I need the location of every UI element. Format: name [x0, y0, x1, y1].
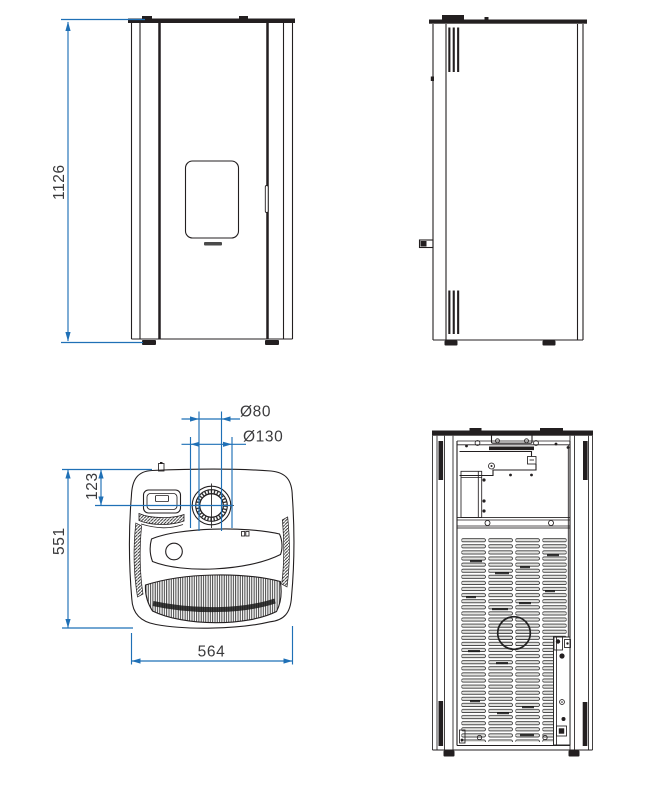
grille-shadow	[470, 700, 480, 702]
screw	[562, 717, 566, 721]
grille-shadow	[522, 706, 534, 708]
upper-mechanism	[460, 434, 570, 518]
screw-small	[482, 499, 485, 502]
grille-shadow	[492, 608, 508, 610]
arrow-left	[132, 658, 141, 663]
stepped-plate-top	[460, 452, 532, 457]
vent-slot	[448, 28, 450, 73]
screw-small	[566, 642, 568, 644]
front-foot-right	[265, 340, 279, 345]
arrow-left	[222, 416, 231, 421]
bottom-vent-slots	[448, 291, 459, 335]
hopper-lid	[139, 490, 184, 528]
grille-shadow	[519, 602, 531, 604]
vent-slot-bottom-left	[439, 701, 444, 746]
arrow-left-out	[191, 442, 200, 447]
side-foot-rear	[445, 341, 458, 346]
middle-bar	[457, 518, 570, 529]
grille-shadow	[468, 650, 480, 652]
grille-hatch	[145, 575, 281, 623]
technical-drawing-svg: 1126	[0, 0, 647, 807]
rear-connector-cap	[421, 241, 427, 247]
brand-logo-mark	[204, 242, 222, 246]
fan-housing	[498, 617, 531, 650]
door-handle	[265, 186, 268, 213]
front-grille-band	[145, 575, 281, 623]
grille-shadow	[520, 566, 530, 568]
flue-block	[442, 15, 464, 20]
front-foot-left	[142, 340, 156, 345]
panel-knob	[166, 543, 183, 560]
top-center-panel	[150, 529, 282, 569]
screw-small	[567, 446, 570, 449]
side-view	[420, 15, 588, 346]
grille-shadow	[520, 734, 534, 736]
vent-slot-top-left	[439, 441, 444, 480]
rear-view	[432, 428, 593, 757]
arrow-up	[65, 470, 70, 479]
right-vent-strip	[282, 517, 290, 587]
screw	[559, 653, 564, 658]
door-frame-edges	[160, 23, 268, 339]
screw	[485, 521, 490, 526]
top-plate-bump	[485, 17, 489, 20]
screw-small	[482, 478, 485, 481]
vent-slot	[457, 291, 459, 335]
vent-slot-top-right	[583, 441, 588, 480]
stepped-plate-bottom	[460, 464, 537, 476]
bracket-bar	[489, 447, 534, 451]
arrow-down	[65, 332, 70, 342]
flue-diameter-label: Ø80	[240, 404, 271, 421]
top-plate	[429, 20, 587, 24]
bar-lines	[457, 520, 570, 526]
screw-small	[465, 445, 468, 448]
power-socket-inner	[559, 728, 564, 733]
rear-foot-left	[444, 751, 455, 757]
stove-dimensional-drawing: 1126	[0, 0, 647, 807]
vent-slot	[448, 291, 450, 335]
screw-small	[482, 509, 485, 512]
top-view	[129, 462, 293, 628]
grille-shadow	[496, 662, 508, 664]
screw-small	[530, 474, 533, 477]
screw	[549, 521, 554, 526]
top-plate-tab	[470, 428, 482, 431]
grille-shadow	[547, 554, 559, 556]
height-label: 1126	[51, 164, 68, 200]
width-dimension: 564	[132, 626, 293, 665]
side-foot-front	[543, 341, 556, 346]
arrow-right-out	[223, 442, 232, 447]
dimension-lines	[61, 20, 145, 343]
grille-shadow	[495, 572, 509, 574]
hopper-lid-latch	[156, 496, 169, 502]
door-window	[186, 161, 239, 238]
flue-offset-label: 123	[84, 472, 101, 500]
arrow-down	[65, 619, 70, 628]
rear-tab-cap	[160, 462, 163, 464]
arrow-up	[65, 22, 70, 32]
panel-clip	[246, 532, 249, 537]
top-plate-tab	[540, 428, 563, 431]
top-plate	[128, 19, 295, 24]
front-view	[128, 16, 295, 345]
hopper-hinge-band	[139, 514, 184, 525]
arrow-right	[190, 416, 199, 421]
arrow-right	[284, 658, 293, 663]
top-plate	[432, 431, 593, 436]
intake-diameter-dimension: Ø130	[182, 429, 284, 529]
height-dimension: 1126	[51, 20, 145, 343]
grille-shadow	[470, 560, 482, 562]
panel-clip	[242, 532, 245, 537]
screw-small	[509, 474, 512, 477]
grille-shadow	[545, 590, 555, 592]
service-strip	[554, 637, 571, 745]
grille-shadow	[497, 712, 509, 714]
screw-small	[555, 443, 558, 446]
screw-center	[561, 701, 563, 703]
vent-slot	[453, 291, 455, 335]
top-plate-bump	[239, 16, 248, 19]
vent-slot	[457, 28, 459, 73]
intake-diameter-label: Ø130	[243, 429, 283, 446]
top-vent-slots	[448, 28, 459, 73]
screw-small	[461, 739, 464, 742]
top-plate-bump	[142, 16, 152, 19]
vent-slot	[453, 28, 455, 73]
grille-shadow	[466, 596, 476, 598]
left-vent-strip	[134, 523, 143, 597]
vent-slot-bottom-right	[583, 702, 588, 746]
rear-bolt	[431, 77, 434, 82]
screw	[556, 639, 560, 643]
width-label: 564	[198, 644, 226, 661]
rear-foot-right	[569, 751, 580, 757]
screw-center	[491, 465, 493, 467]
auger-column-lines	[461, 471, 482, 517]
rear-grille	[462, 538, 567, 742]
depth-label: 551	[51, 527, 68, 555]
body-outline	[433, 24, 583, 340]
